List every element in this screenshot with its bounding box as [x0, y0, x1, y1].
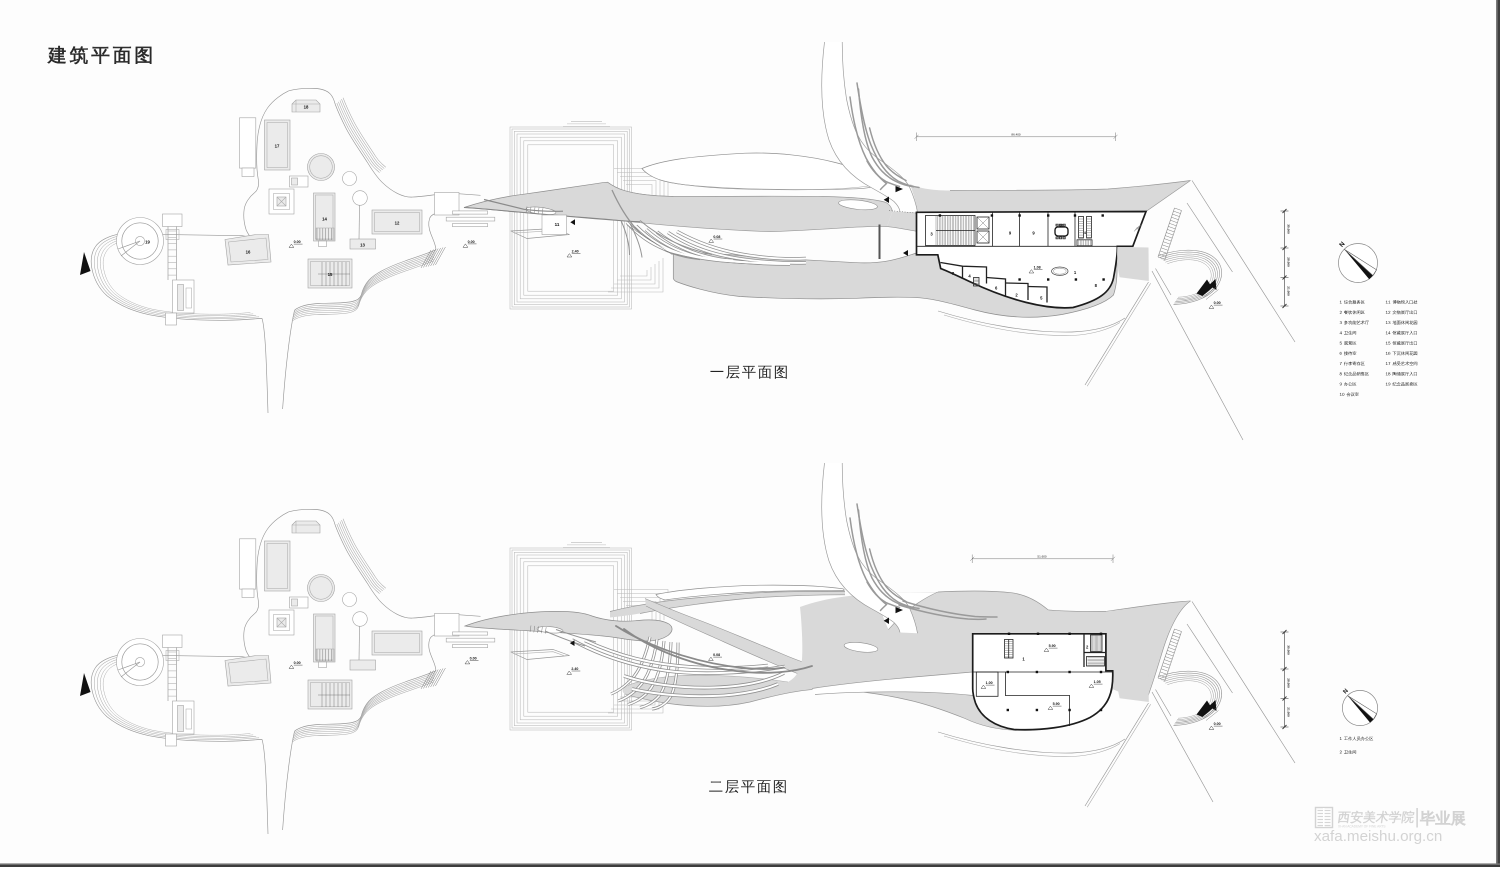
- svg-text:0.00: 0.00: [468, 240, 475, 244]
- svg-text:10: 10: [1059, 224, 1063, 228]
- svg-text:86.400: 86.400: [1011, 133, 1021, 137]
- svg-text:11: 11: [555, 222, 560, 227]
- svg-text:13: 13: [360, 242, 365, 247]
- svg-text:15: 15: [328, 272, 333, 277]
- svg-text:1.08: 1.08: [1034, 266, 1041, 270]
- svg-text:17: 17: [275, 144, 280, 149]
- svg-text:0.08: 0.08: [713, 653, 720, 657]
- svg-text:5.90: 5.90: [1053, 702, 1060, 706]
- svg-text:2.40: 2.40: [572, 250, 579, 254]
- svg-text:xafa.meishu.org.cn: xafa.meishu.org.cn: [1314, 828, 1442, 845]
- svg-text:0.00: 0.00: [470, 657, 477, 661]
- svg-text:51.600: 51.600: [1037, 555, 1047, 559]
- svg-text:16: 16: [246, 250, 251, 255]
- svg-text:1.00: 1.00: [986, 681, 993, 685]
- svg-text:19: 19: [145, 240, 150, 245]
- svg-text:18: 18: [304, 105, 309, 110]
- svg-text:2.40: 2.40: [571, 667, 578, 671]
- svg-text:5.90: 5.90: [1049, 644, 1056, 648]
- svg-text:1.05: 1.05: [1094, 680, 1101, 684]
- svg-text:14: 14: [322, 217, 327, 222]
- svg-text:0.08: 0.08: [713, 235, 720, 239]
- svg-text:12: 12: [395, 221, 400, 226]
